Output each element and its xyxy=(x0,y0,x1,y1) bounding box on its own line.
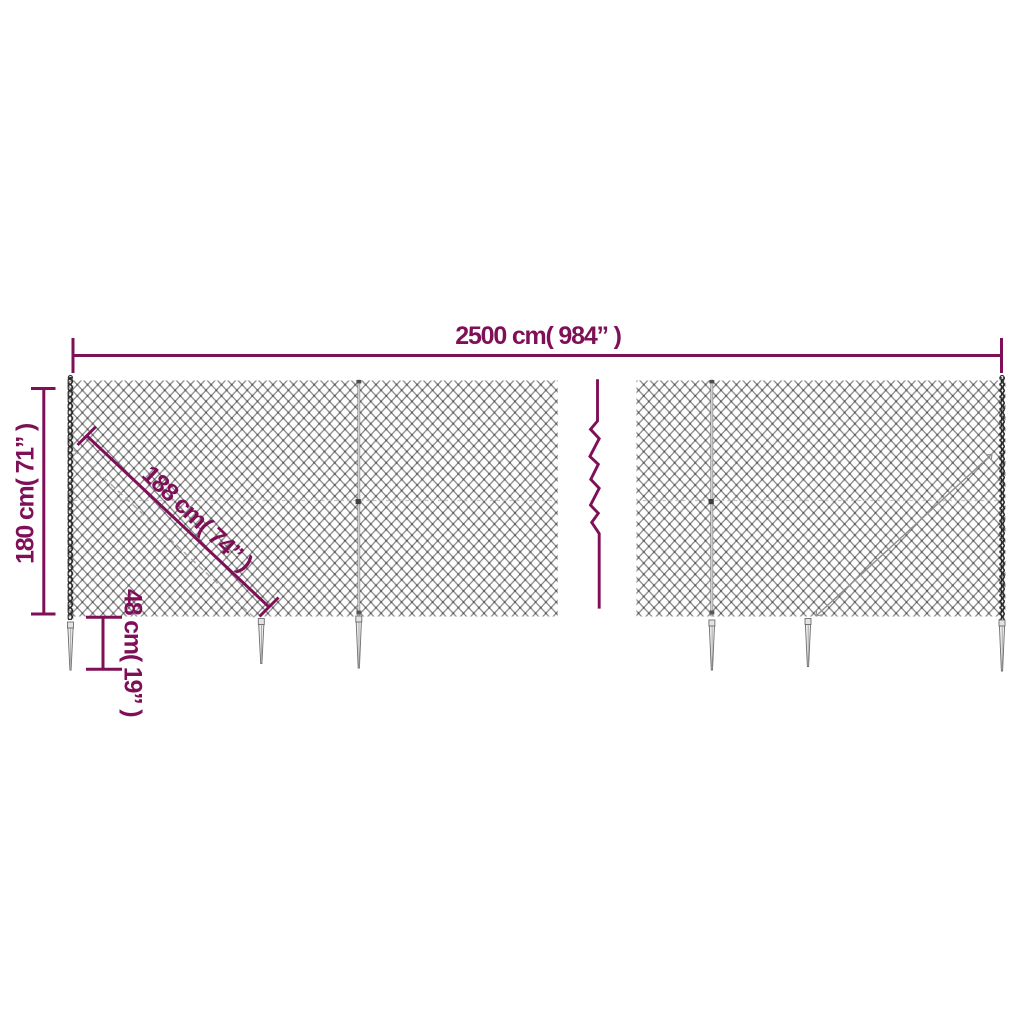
svg-text:48 cm( 19” ): 48 cm( 19” ) xyxy=(119,589,147,717)
svg-text:2500 cm( 984” ): 2500 cm( 984” ) xyxy=(455,322,621,350)
svg-text:180 cm( 71” ): 180 cm( 71” ) xyxy=(12,423,40,564)
